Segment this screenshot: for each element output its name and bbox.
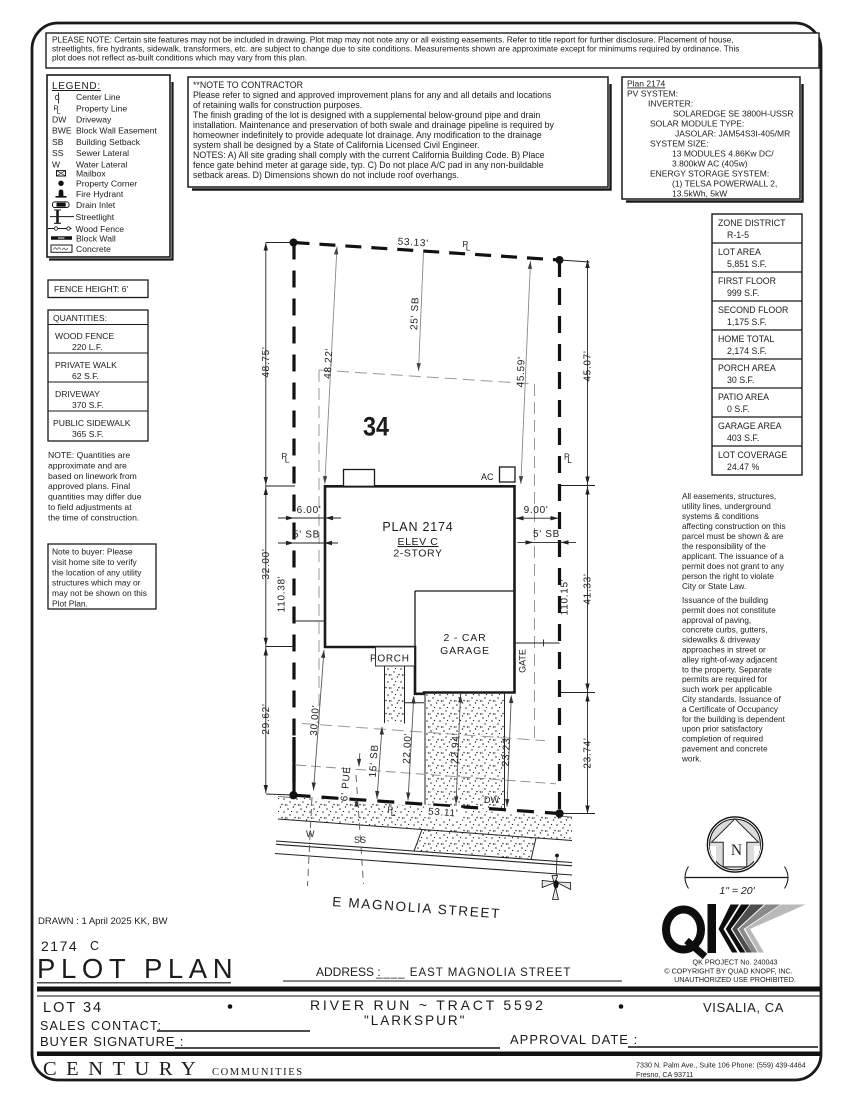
- svg-text:34: 34: [363, 412, 389, 442]
- svg-text:Center Line: Center Line: [76, 92, 121, 102]
- svg-text:L: L: [391, 808, 396, 818]
- svg-text:48.22': 48.22': [323, 348, 336, 380]
- svg-text:VISALIA, CA: VISALIA, CA: [703, 1000, 784, 1015]
- svg-text:Block Wall Easement: Block Wall Easement: [76, 126, 157, 136]
- svg-text:approval of paving,: approval of paving,: [682, 616, 751, 625]
- svg-text:visit home site to verify: visit home site to verify: [52, 557, 138, 567]
- svg-text:L: L: [285, 455, 290, 465]
- svg-text:Mailbox: Mailbox: [76, 168, 106, 178]
- svg-text:30 S.F.: 30 S.F.: [727, 375, 754, 385]
- svg-text:SOLAREDGE SE 3800H-USSR: SOLAREDGE SE 3800H-USSR: [673, 109, 793, 119]
- svg-text:2-STORY: 2-STORY: [393, 548, 442, 560]
- svg-text:approved plans. Final: approved plans. Final: [48, 481, 130, 491]
- svg-text:fence gate behind meter at gar: fence gate behind meter at garage side, …: [193, 160, 544, 170]
- svg-text:person the right to violate: person the right to violate: [682, 572, 774, 581]
- svg-text:9.00': 9.00': [524, 505, 549, 516]
- svg-text:999 S.F.: 999 S.F.: [727, 288, 759, 298]
- svg-text:PLOT PLAN: PLOT PLAN: [37, 953, 238, 984]
- svg-text:5' SB: 5' SB: [533, 529, 560, 540]
- svg-text:53.13': 53.13': [397, 236, 429, 249]
- svg-text:NOTES: A) All site grading sh: NOTES: A) All site grading shall comply …: [193, 150, 545, 160]
- svg-text:INVERTER:: INVERTER:: [648, 99, 693, 109]
- svg-text:220 L.F.: 220 L.F.: [72, 342, 103, 352]
- svg-text:plot does not reflect as-built: plot does not reflect as-built condition…: [52, 53, 307, 63]
- svg-text:QUANTITIES:: QUANTITIES:: [53, 313, 107, 323]
- svg-text:GARAGE AREA: GARAGE AREA: [718, 421, 782, 431]
- svg-text:AC: AC: [481, 472, 494, 482]
- svg-text:APPROVAL DATE :: APPROVAL DATE :: [510, 1032, 638, 1047]
- svg-text:R-1-5: R-1-5: [727, 230, 749, 240]
- svg-text:5,851 S.F.: 5,851 S.F.: [727, 259, 767, 269]
- svg-text:45.07': 45.07': [583, 350, 594, 381]
- svg-text:systems & conditions: systems & conditions: [682, 512, 759, 521]
- svg-text:6.00': 6.00': [297, 505, 322, 516]
- svg-text:SALES CONTACT:: SALES CONTACT:: [40, 1019, 162, 1033]
- svg-text:23.23': 23.23': [500, 735, 513, 767]
- svg-text:1,175 S.F.: 1,175 S.F.: [727, 317, 767, 327]
- svg-text:ADDRESS :: ADDRESS :: [316, 965, 381, 979]
- svg-text:setback areas. D) Dimensions: setback areas. D) Dimensions shown do no…: [193, 170, 459, 180]
- svg-text:1" = 20': 1" = 20': [719, 885, 755, 897]
- svg-text:365 S.F.: 365 S.F.: [72, 429, 104, 439]
- svg-text:Issuance of the building: Issuance of the building: [682, 596, 768, 605]
- svg-text:Property Line: Property Line: [76, 104, 127, 114]
- svg-text:22.94': 22.94': [449, 733, 462, 765]
- svg-text:48.75': 48.75': [261, 346, 272, 377]
- svg-text:to the property. Separate: to the property. Separate: [682, 665, 772, 674]
- svg-text:PORCH: PORCH: [370, 654, 410, 665]
- svg-text:C: C: [90, 939, 99, 953]
- svg-text:2,174 S.F.: 2,174 S.F.: [727, 346, 767, 356]
- svg-text:The finish grading of the lot: The finish grading of the lot is designe…: [193, 110, 540, 120]
- svg-text:LEGEND:: LEGEND:: [52, 81, 101, 92]
- svg-text:SYSTEM SIZE:: SYSTEM SIZE:: [650, 139, 709, 149]
- svg-text:PRIVATE WALK: PRIVATE WALK: [55, 360, 117, 370]
- svg-text:C: C: [55, 93, 61, 102]
- svg-text:Drain Inlet: Drain Inlet: [76, 200, 116, 210]
- svg-text:DRAWN : 1 April 2025 KK, B: DRAWN : 1 April 2025 KK, BW: [38, 916, 168, 927]
- svg-text:PUBLIC SIDEWALK: PUBLIC SIDEWALK: [53, 418, 131, 428]
- svg-text:applicant. The issuance of a: applicant. The issuance of a: [682, 552, 784, 561]
- svg-text:permit does not constitute: permit does not constitute: [682, 606, 776, 615]
- svg-text:ELEV C: ELEV C: [398, 536, 439, 548]
- svg-text:Block Wall: Block Wall: [76, 233, 116, 243]
- svg-text:All easements, structures,: All easements, structures,: [682, 492, 776, 501]
- svg-text:Sewer Lateral: Sewer Lateral: [76, 148, 129, 158]
- svg-text:the location of any utility: the location of any utility: [52, 567, 142, 577]
- svg-text:the responsibility of the: the responsibility of the: [682, 542, 766, 551]
- svg-text:for the building is dependent: for the building is dependent: [682, 715, 786, 724]
- svg-text:(1) TELSA POWERWALL 2,: (1) TELSA POWERWALL 2,: [672, 179, 777, 189]
- svg-text:W: W: [306, 829, 315, 839]
- svg-text:62 S.F.: 62 S.F.: [72, 371, 99, 381]
- svg-text:SS: SS: [52, 148, 64, 158]
- svg-text:Building Setback: Building Setback: [76, 137, 141, 147]
- svg-text:LOT 34: LOT 34: [43, 1000, 103, 1016]
- svg-text:LOT AREA: LOT AREA: [718, 247, 761, 257]
- svg-text:BUYER SIGNATURE :: BUYER SIGNATURE :: [40, 1034, 184, 1049]
- svg-text:5' SB: 5' SB: [293, 530, 320, 541]
- svg-text:PORCH AREA: PORCH AREA: [718, 363, 776, 373]
- svg-text:2 - CAR: 2 - CAR: [444, 632, 487, 644]
- svg-text:LOT COVERAGE: LOT COVERAGE: [718, 450, 787, 460]
- svg-text:Please refer to signed and app: Please refer to signed and approved impr…: [193, 90, 552, 100]
- svg-text:N: N: [731, 842, 742, 859]
- svg-text:approximate and are: approximate and are: [48, 460, 127, 470]
- svg-text:Fire Hydrant: Fire Hydrant: [76, 189, 124, 199]
- svg-text:WOOD FENCE: WOOD FENCE: [55, 331, 114, 341]
- svg-text:installation. Maintenance and: installation. Maintenance and preservati…: [193, 120, 555, 130]
- svg-text:GATE: GATE: [518, 649, 528, 673]
- svg-text:© COPYRIGHT BY QUAD KNOPF, I: © COPYRIGHT BY QUAD KNOPF, INC.: [664, 966, 792, 975]
- svg-text:13 MODULES 4.86Kw DC/: 13 MODULES 4.86Kw DC/: [672, 149, 774, 159]
- svg-text:24.47 %: 24.47 %: [727, 462, 759, 472]
- svg-text:7330 N. Palm Ave., Suite 106: 7330 N. Palm Ave., Suite 106 Phone: (559…: [636, 1061, 806, 1070]
- svg-text:13.5kWh, 5kW: 13.5kWh, 5kW: [672, 189, 727, 199]
- svg-text:L: L: [466, 243, 471, 253]
- svg-text:Property Corner: Property Corner: [76, 179, 137, 189]
- svg-text:approaches in street or: approaches in street or: [682, 646, 766, 655]
- svg-text:may not be shown on this: may not be shown on this: [52, 588, 147, 598]
- svg-text:work.: work.: [681, 754, 702, 763]
- svg-text:City or State Law.: City or State Law.: [682, 582, 746, 591]
- svg-text:QK PROJECT No. 240043: QK PROJECT No. 240043: [693, 958, 778, 967]
- svg-text:110.15': 110.15': [560, 579, 571, 616]
- svg-text:45.59': 45.59': [515, 356, 527, 388]
- svg-text:Streetlight: Streetlight: [76, 212, 115, 222]
- svg-text:SS: SS: [354, 835, 366, 845]
- svg-text:3.800kW AC (405w): 3.800kW AC (405w): [672, 159, 748, 169]
- svg-text:22.00': 22.00': [401, 733, 414, 765]
- svg-text:403 S.F.: 403 S.F.: [727, 433, 759, 443]
- svg-text:23.74': 23.74': [583, 737, 594, 768]
- svg-text:L: L: [567, 455, 572, 465]
- svg-text:PATIO AREA: PATIO AREA: [718, 392, 769, 402]
- svg-text:**NOTE TO CONTRACTOR: **NOTE TO CONTRACTOR: [193, 80, 303, 90]
- svg-text:SOLAR MODULE TYPE:: SOLAR MODULE TYPE:: [650, 119, 744, 129]
- svg-text:PLAN 2174: PLAN 2174: [382, 520, 453, 534]
- svg-text:Driveway: Driveway: [76, 115, 112, 125]
- svg-text:affecting construction on this: affecting construction on this: [682, 522, 786, 531]
- svg-text:370 S.F.: 370 S.F.: [72, 400, 104, 410]
- svg-text:Plan 2174: Plan 2174: [627, 79, 666, 89]
- svg-text:W: W: [52, 159, 61, 169]
- svg-text:PV SYSTEM:: PV SYSTEM:: [627, 89, 678, 99]
- svg-text:32.00': 32.00': [261, 548, 272, 579]
- svg-text:SB: SB: [52, 137, 64, 147]
- svg-text:30.00': 30.00': [309, 704, 322, 736]
- svg-text:sidewalks & driveway: sidewalks & driveway: [682, 636, 761, 645]
- svg-text:permits are required for: permits are required for: [682, 675, 767, 684]
- svg-text:110.38': 110.38': [277, 576, 288, 613]
- svg-text:0 S.F.: 0 S.F.: [727, 404, 750, 414]
- svg-text:a Certificate of Occupancy: a Certificate of Occupancy: [682, 705, 779, 714]
- svg-text:parcel must be shown & are: parcel must be shown & are: [682, 532, 784, 541]
- svg-text:2174: 2174: [41, 938, 78, 954]
- svg-text:UNAUTHORIZED USE PROHIBITED.: UNAUTHORIZED USE PROHIBITED.: [674, 975, 796, 984]
- svg-text:pavement and concrete: pavement and concrete: [682, 745, 768, 754]
- svg-text:DW: DW: [52, 115, 67, 125]
- svg-text:upon prior satisfactory: upon prior satisfactory: [682, 725, 763, 734]
- svg-text:Plot Plan.: Plot Plan.: [52, 599, 88, 609]
- svg-text:such work per applicable: such work per applicable: [682, 685, 773, 694]
- svg-text:BWE: BWE: [52, 126, 72, 136]
- svg-text:FENCE HEIGHT: 6': FENCE HEIGHT: 6': [54, 284, 129, 294]
- svg-text:the time of construction.: the time of construction.: [48, 512, 139, 522]
- svg-text:completion of required: completion of required: [682, 735, 763, 744]
- svg-text:53.11': 53.11': [428, 806, 459, 819]
- svg-text:structures which may or: structures which may or: [52, 578, 141, 588]
- svg-text:SECOND FLOOR: SECOND FLOOR: [718, 305, 788, 315]
- svg-text:JASOLAR: JAM54S3I-405/MR: JASOLAR: JAM54S3I-405/MR: [675, 129, 790, 139]
- svg-text:"LARKSPUR": "LARKSPUR": [364, 1013, 466, 1028]
- svg-text:NOTE: Quantities are: NOTE: Quantities are: [48, 450, 130, 460]
- svg-text:Wood Fence: Wood Fence: [76, 224, 125, 234]
- svg-text:41.33': 41.33': [583, 573, 594, 604]
- svg-text:RIVER RUN ~ TRACT 5592: RIVER RUN ~ TRACT 5592: [310, 997, 546, 1013]
- svg-text:system shall be designed by a: system shall be designed by a State of C…: [193, 140, 480, 150]
- svg-text:____ EAST MAGNOLIA STREET: ____ EAST MAGNOLIA STREET: [375, 967, 571, 979]
- svg-text:Fresno, CA 93711: Fresno, CA 93711: [636, 1070, 693, 1079]
- svg-text:15' SB: 15' SB: [368, 744, 381, 778]
- svg-text:of retaining walls for constru: of retaining walls for construction purp…: [193, 100, 362, 110]
- svg-text:FIRST FLOOR: FIRST FLOOR: [718, 276, 776, 286]
- svg-text:DW: DW: [484, 795, 499, 805]
- svg-text:29.62': 29.62': [261, 703, 272, 734]
- svg-text:HOME TOTAL: HOME TOTAL: [718, 334, 774, 344]
- svg-text:alley right-of-way adjacent: alley right-of-way adjacent: [682, 655, 778, 664]
- svg-text:ENERGY STORAGE SYSTEM:: ENERGY STORAGE SYSTEM:: [650, 169, 769, 179]
- svg-text:DRIVEWAY: DRIVEWAY: [55, 389, 100, 399]
- svg-text:25' SB: 25' SB: [409, 296, 421, 330]
- svg-text:CENTURY: CENTURY: [43, 1058, 205, 1080]
- svg-text:Concrete: Concrete: [76, 244, 111, 254]
- svg-text:Note to buyer: Please: Note to buyer: Please: [52, 547, 133, 557]
- svg-text:homeowner indefinitely to prov: homeowner indefinitely to provide adequa…: [193, 130, 542, 140]
- svg-text:to field adjustments at: to field adjustments at: [48, 502, 132, 512]
- svg-text:COMMUNITIES: COMMUNITIES: [212, 1067, 304, 1078]
- svg-text:ZONE DISTRICT: ZONE DISTRICT: [718, 218, 786, 228]
- svg-text:City standards. Issuance of: City standards. Issuance of: [682, 695, 781, 704]
- svg-text:utility lines, underground: utility lines, underground: [682, 502, 771, 511]
- svg-text:permit does not grant to any: permit does not grant to any: [682, 562, 785, 571]
- svg-text:based on linework from: based on linework from: [48, 471, 137, 481]
- svg-text:GARAGE: GARAGE: [440, 645, 490, 657]
- svg-text:quantities may differ due: quantities may differ due: [48, 492, 142, 502]
- svg-text:concrete curbs, gutters,: concrete curbs, gutters,: [682, 626, 768, 635]
